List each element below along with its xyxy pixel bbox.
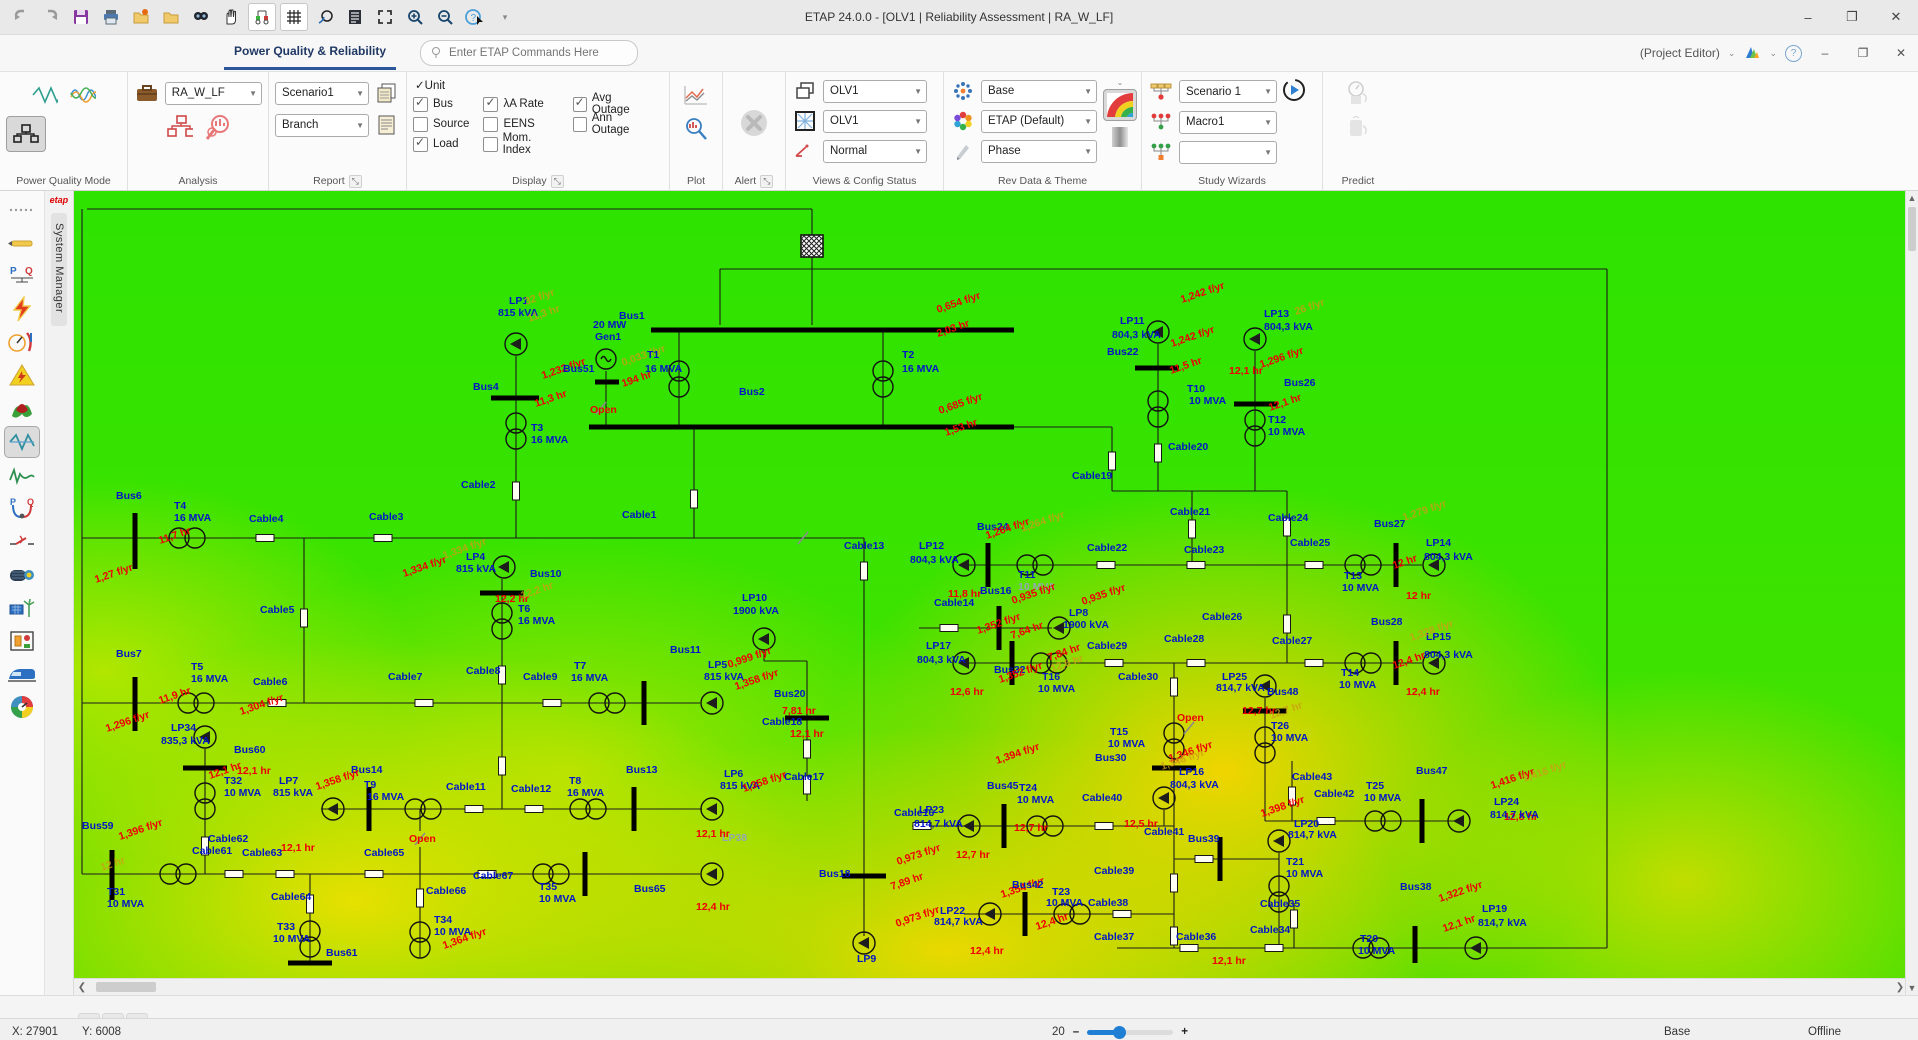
diagram-label: 814,7 kVA [1288, 829, 1337, 841]
group-label-plot: Plot [676, 172, 716, 190]
diagram-label: 10 MVA [1271, 732, 1309, 744]
cable-symbol[interactable] [1108, 452, 1115, 470]
diagram-label: Bus16 [980, 585, 1012, 597]
report-scenario-combo[interactable]: Scenario1▼ [275, 82, 369, 105]
scenario-wizard-icon[interactable] [1148, 79, 1174, 105]
diagram-label: Cable39 [1094, 865, 1134, 877]
diagram-label: Cable22 [1087, 542, 1127, 554]
ribbon-group-report: Scenario1▼ Branch▼ Report⤡ [269, 72, 407, 190]
scroll-down-icon[interactable]: ▼ [1908, 981, 1917, 995]
diagram-label: T13 [1344, 570, 1362, 582]
load-triangle-icon [1453, 815, 1464, 827]
display-launcher-icon[interactable]: ⤡ [551, 175, 564, 188]
presentation-views-icon[interactable] [792, 78, 818, 104]
diagram-label: 11,5 hr [1168, 355, 1203, 377]
diagram-label: Cable66 [426, 885, 466, 897]
color-mode-combo[interactable]: Phase▼ [981, 140, 1097, 163]
diagram-label: 10 MVA [1342, 582, 1380, 594]
diagram-label: 814,7 kVA [1216, 682, 1265, 694]
diagram-label: LP6 [724, 768, 743, 780]
open-project-icon[interactable] [158, 4, 184, 30]
cable-symbol[interactable] [1188, 520, 1195, 538]
diagram-label: Cable4 [249, 513, 284, 525]
diagram-label: Bus48 [1267, 686, 1299, 698]
doc-minimize-button[interactable]: – [1810, 38, 1840, 68]
diagram-label: LP10 [742, 592, 767, 604]
find-icon[interactable] [188, 4, 214, 30]
cable-symbol[interactable] [1154, 444, 1161, 462]
cable-symbol[interactable] [225, 871, 243, 878]
diagram-label: 12,1 hr [696, 828, 730, 840]
diagram-label: T33 [277, 921, 295, 933]
power-quality-wave-icon[interactable] [4, 426, 40, 458]
diagram-label: T24 [1019, 782, 1037, 794]
diagram-label: Bus6 [116, 490, 142, 502]
cable-symbol[interactable] [860, 562, 867, 580]
group-label-views: Views & Config Status [792, 172, 937, 190]
scroll-left-icon[interactable]: ❮ [74, 982, 90, 993]
diagram-label: Cable35 [1260, 898, 1300, 910]
cable-symbol[interactable] [465, 806, 483, 813]
scroll-up-icon[interactable]: ▲ [1908, 191, 1917, 205]
cable-symbol[interactable] [365, 871, 383, 878]
diagram-label: Cable25 [1290, 537, 1330, 549]
toolbar-overflow-icon[interactable]: ▾ [492, 4, 518, 30]
rev-data-combo[interactable]: Base▼ [981, 80, 1097, 103]
diagram-label: 1,358 f/yr [314, 767, 361, 793]
diagram-label: Cable28 [1164, 633, 1204, 645]
doc-close-button[interactable]: ✕ [1886, 38, 1916, 68]
doc-restore-button[interactable]: ❐ [1848, 38, 1878, 68]
diagram-label: Bus59 [82, 820, 114, 832]
checkbox-icon[interactable] [483, 137, 497, 152]
load-triangle-icon [510, 338, 521, 350]
plot-zoom-icon[interactable] [683, 116, 709, 142]
diagram-label: 804,3 kVA [1170, 779, 1219, 791]
macro-wizard-icon[interactable] [1148, 109, 1174, 135]
display-unit-toggle[interactable]: ✓Unit [415, 78, 663, 92]
diagram-label: Cable19 [1072, 470, 1112, 482]
diagram-label: 1,358 f/yr [741, 769, 788, 795]
diagram-label: LP7 [279, 775, 298, 787]
svg-text:Q: Q [25, 266, 33, 277]
diagram-label: Cable14 [934, 597, 974, 609]
group-label-pqmode: Power Quality Mode [6, 172, 121, 190]
new-project-icon[interactable] [128, 4, 154, 30]
diagram-label: Bus4 [473, 381, 499, 393]
diagram-label: 12,6 hr [950, 686, 984, 698]
diagram-label: 10 MVA [273, 933, 311, 945]
text-report-icon[interactable] [342, 4, 368, 30]
diagram-label: Bus13 [626, 764, 658, 776]
diagram-label: 0,685 f/yr [937, 391, 984, 417]
checkbox-icon[interactable] [573, 97, 587, 112]
minimize-button[interactable]: – [1786, 0, 1830, 34]
checkbox-icon[interactable] [483, 97, 498, 112]
diagram-label: Cable65 [364, 847, 404, 859]
report-launcher-icon[interactable]: ⤡ [349, 175, 362, 188]
cable-symbol[interactable] [498, 757, 505, 775]
report-type-combo[interactable]: Branch▼ [275, 114, 369, 137]
cable-symbol[interactable] [1170, 678, 1177, 696]
cable-symbol[interactable] [415, 700, 433, 707]
diagram-label: 12 hr [1406, 590, 1431, 602]
diagram-label: LP8 [1069, 607, 1088, 619]
alert-launcher-icon[interactable]: ⤡ [760, 175, 773, 188]
arc-flash-warning-icon[interactable] [5, 360, 39, 390]
diagram-label: 814,7 kVA [914, 818, 963, 830]
ribbon: Power Quality Mode RA_W_LF▼ Analysis Sce… [0, 72, 1918, 191]
display-checkbox[interactable]: Source [413, 114, 469, 134]
cable-symbol[interactable] [1305, 562, 1323, 569]
save-icon[interactable] [68, 4, 94, 30]
zoom-in-icon[interactable] [402, 4, 428, 30]
help-icon[interactable]: ? [1785, 45, 1802, 62]
edit-mode-pencil-icon[interactable] [5, 228, 39, 258]
cable-symbol[interactable] [1187, 562, 1205, 569]
vertical-scrollbar[interactable]: ▲ ▼ [1905, 191, 1918, 995]
diagram-label: 12,4 hr [970, 945, 1004, 957]
cable-symbol[interactable] [543, 700, 561, 707]
config-combo[interactable]: OLV1▼ [823, 110, 927, 133]
renewable-energy-icon[interactable] [5, 593, 39, 623]
cable-symbol[interactable] [374, 535, 392, 542]
cable-symbol[interactable] [525, 806, 543, 813]
zoom-slider[interactable] [1087, 1030, 1173, 1035]
diagram-label: Cable23 [1184, 544, 1224, 556]
diagram-label: LP17 [926, 640, 951, 652]
print-icon[interactable] [98, 4, 124, 30]
diagram-label: LP34 [171, 722, 196, 734]
diagram-label: LP5 [708, 659, 727, 671]
one-line-diagram-icon[interactable] [248, 3, 276, 31]
diagram-label: 0,973 f/yr [895, 842, 942, 868]
cable-symbol[interactable] [803, 740, 810, 758]
sequence-combo[interactable]: ▼ [1179, 141, 1277, 164]
redo-button[interactable] [38, 4, 64, 30]
diagram-label: 16 MVA [191, 673, 229, 685]
display-checkbox[interactable]: Mom. Index [483, 134, 558, 154]
diagram-label: Cable40 [1082, 792, 1122, 804]
config-view-icon[interactable] [792, 108, 818, 134]
diagram-label: T32 [224, 775, 242, 787]
waveform-multi-icon[interactable] [70, 82, 96, 108]
diagram-label: 12,7 hr [1268, 699, 1304, 721]
motor-starting-gauge-icon[interactable] [5, 327, 39, 357]
diagram-label: Bus22 [1107, 346, 1139, 358]
dashboard-gauge-icon[interactable] [5, 692, 39, 722]
theme-wheel-icon[interactable] [950, 108, 976, 134]
diagram-label: T21 [1286, 856, 1304, 868]
cable-symbol[interactable] [1097, 562, 1115, 569]
reliability-heatmap-diagram[interactable]: LP1815 kVA32 f/yr11,3 hrBus41,232 f/yr11… [74, 191, 1905, 979]
diagram-label: 10 MVA [1046, 897, 1084, 909]
diagram-label: Cable36 [1176, 931, 1216, 943]
diagram-label: 16 MVA [531, 434, 569, 446]
cable-symbol[interactable] [1170, 874, 1177, 892]
zoom-out-icon[interactable] [432, 4, 458, 30]
diagram-label: Cable21 [1170, 506, 1210, 518]
diagram-label: Bus20 [774, 688, 806, 700]
theme-chevron-icon[interactable]: ⌄ [1769, 48, 1777, 59]
gradient-bar-icon[interactable] [1107, 124, 1133, 150]
display-checkbox[interactable]: EENS [483, 114, 558, 134]
diagram-label: 1900 kVA [1063, 619, 1109, 631]
checkbox-icon[interactable] [483, 117, 498, 132]
command-input[interactable] [447, 46, 601, 60]
horizontal-scroll-thumb[interactable] [96, 982, 156, 992]
diagram-label: T5 [191, 661, 203, 673]
grid-icon[interactable] [280, 3, 308, 31]
run-scenario-button[interactable] [1282, 78, 1306, 105]
display-checkbox[interactable]: Avg Outage [573, 94, 649, 114]
checkbox-icon[interactable] [413, 117, 428, 132]
diagram-label: 10 MVA [1364, 792, 1402, 804]
report-doc-icon[interactable] [374, 112, 400, 138]
diagram-label: T15 [1110, 726, 1128, 738]
diagram-label: Cable43 [1292, 771, 1332, 783]
diagram-label: LP24 [1494, 796, 1519, 808]
quick-access-toolbar: ? ▾ [0, 3, 518, 31]
zoom-in-button[interactable]: + [1181, 1026, 1188, 1038]
diagram-label: Bus28 [1371, 616, 1403, 628]
diagram-label: 12,7 hr [956, 849, 990, 861]
scroll-right-icon[interactable]: ❯ [1892, 982, 1905, 993]
rev-data-dots-icon[interactable] [950, 78, 976, 104]
diagram-label: 804,3 kVA [1424, 551, 1473, 563]
short-circuit-bolt-icon[interactable] [5, 294, 39, 324]
diagram-label: 814,7 kVA [934, 916, 983, 928]
tab-power-quality-reliability[interactable]: Power Quality & Reliability [224, 36, 396, 70]
diagram-label: 1,334 f/yr [401, 554, 448, 580]
diagram-label: Cable2 [461, 479, 496, 491]
ribbon-group-display: ✓Unit BusSourceLoad λA RateEENSMom. Inde… [407, 72, 670, 190]
fit-to-page-icon[interactable] [372, 4, 398, 30]
tab-system-manager[interactable]: System Manager [51, 213, 67, 326]
connection-status: Offline [1808, 1026, 1841, 1038]
cable-symbol[interactable] [416, 889, 423, 907]
left-toolbar: PQ PQ [0, 191, 45, 995]
protection-coordination-icon[interactable] [5, 393, 39, 423]
diagram-label: 12,1 hr [1267, 391, 1303, 413]
zoom-level-value: 20 [1052, 1026, 1065, 1038]
diagram-label: 7,89 hr [889, 870, 925, 892]
cable-symbol[interactable] [276, 871, 294, 878]
horizontal-scrollbar[interactable]: ❮ ❯ [74, 978, 1905, 995]
display-checkbox[interactable]: λA Rate [483, 94, 558, 114]
diagram-label: 10 MVA [1268, 426, 1306, 438]
display-checkbox[interactable]: Bus [413, 94, 469, 114]
cable-symbol[interactable] [1113, 911, 1131, 918]
diagram-label: LP11 [1120, 315, 1145, 327]
brush-icon[interactable] [950, 138, 976, 164]
cable-symbol[interactable] [1187, 660, 1205, 667]
cable-symbol[interactable] [1283, 615, 1290, 633]
diagram-label: T6 [518, 603, 530, 615]
diagram-label: Cable30 [1118, 671, 1158, 683]
rev-data-mini-chevron-icon[interactable]: ⌄ [1117, 78, 1124, 87]
utility-hatch-icon [801, 235, 823, 257]
zoom-slider-thumb[interactable] [1113, 1026, 1126, 1039]
diagram-label: 1,296 f/yr [1258, 345, 1305, 371]
project-editor-chevron-icon[interactable]: ⌄ [1728, 48, 1736, 59]
run-reliability-icon[interactable] [167, 114, 193, 140]
diagram-label: 10 MVA [107, 898, 145, 910]
heatmap-theme-icon[interactable] [1103, 89, 1137, 121]
cursor-y-coordinate: Y: 6008 [70, 1026, 133, 1038]
checkbox-icon[interactable] [413, 97, 428, 112]
diagram-label: Bus39 [1188, 833, 1220, 845]
transient-stability-icon[interactable] [5, 461, 39, 491]
plot-chart-icon[interactable] [683, 82, 709, 108]
cable-symbol[interactable] [1095, 823, 1113, 830]
view-combo[interactable]: OLV1▼ [823, 80, 927, 103]
checkbox-icon[interactable] [413, 137, 428, 152]
status-combo[interactable]: Normal▼ [823, 140, 927, 163]
diagram-label: Cable38 [1088, 897, 1128, 909]
diagram-label: 12,1 hr [1212, 955, 1246, 967]
display-checkbox[interactable]: Load [413, 134, 469, 154]
diagram-label: 804,3 kVA [917, 654, 966, 666]
diagram-label: 10 MVA [539, 893, 577, 905]
motor-icon[interactable] [5, 560, 39, 590]
one-line-diagram-canvas[interactable]: LP1815 kVA32 f/yr11,3 hrBus41,232 f/yr11… [74, 191, 1905, 995]
diagram-label: Bus60 [234, 744, 266, 756]
cable-symbol[interactable] [690, 490, 697, 508]
theme-swatch-icon[interactable] [1743, 45, 1761, 61]
zoom-control: 20 – + [1052, 1026, 1188, 1038]
macro-combo[interactable]: Macro1▼ [1179, 111, 1277, 134]
load-triangle-icon [706, 803, 717, 815]
switching-device-icon[interactable] [5, 527, 39, 557]
diagram-label: 1,396 f/yr [117, 817, 164, 843]
diagram-label: Cable13 [844, 540, 884, 552]
load-triangle-icon [1470, 942, 1481, 954]
svg-text:?: ? [471, 13, 477, 24]
cable-symbol[interactable] [256, 535, 274, 542]
bottom-dock-tabs [0, 995, 1918, 1018]
pq-curve-icon[interactable]: PQ [5, 494, 39, 524]
cable-symbol[interactable] [512, 482, 519, 500]
control-system-icon[interactable] [5, 626, 39, 656]
load-triangle-icon [1249, 333, 1260, 345]
cable-symbol[interactable] [1180, 945, 1198, 952]
cable-symbol[interactable] [1195, 856, 1213, 863]
diagram-label: 12,1 hr [790, 728, 824, 740]
close-button[interactable]: ✕ [1874, 0, 1918, 34]
diagram-label: Cable17 [784, 771, 824, 783]
ribbon-group-rev-data-theme: Base▼ ETAP (Default)▼ Phase▼ ⌄ [944, 72, 1142, 190]
diagram-label: 11,3 hr [533, 388, 568, 410]
load-flow-pq-icon[interactable]: PQ [5, 261, 39, 291]
diagram-label: Cable61 [192, 845, 232, 857]
diagram-label: T1 [647, 349, 659, 361]
diagram-label: Bus47 [1416, 765, 1448, 777]
predict-gauge-icon [1345, 80, 1371, 106]
cable-symbol[interactable] [1317, 818, 1335, 825]
context-help-icon[interactable]: ? [462, 4, 488, 30]
diagram-label: Cable64 [271, 891, 311, 903]
cable-symbol[interactable] [1105, 660, 1123, 667]
restore-button[interactable]: ❐ [1830, 0, 1874, 34]
edit-toolbar-handle-icon[interactable] [5, 195, 39, 225]
display-check-col2: λA RateEENSMom. Index [483, 94, 558, 154]
cable-symbol[interactable] [940, 625, 958, 632]
diagram-label: 12,7 hr [1014, 822, 1048, 834]
cable-symbol[interactable] [1290, 910, 1297, 928]
study-case-combo[interactable]: RA_W_LF▼ [165, 82, 262, 105]
diagram-label: LP13 [1264, 308, 1289, 320]
load-triangle-icon [706, 868, 717, 880]
diagram-label: 1,242 f/yr [1179, 280, 1226, 306]
diagram-label: 16 MVA [567, 787, 605, 799]
diagram-label: T9 [364, 779, 376, 791]
status-line-icon[interactable] [792, 138, 818, 164]
pan-icon[interactable] [218, 4, 244, 30]
diagram-label: 12,4 hr [1406, 686, 1440, 698]
diagram-label: 12,1 hr [1441, 912, 1477, 934]
ribbon-group-study-wizards: Scenario 1▼ Macro1▼ ▼ Study Wizards [1142, 72, 1323, 190]
curve-tool-icon[interactable] [312, 4, 338, 30]
display-checkbox[interactable]: Ann Outage [573, 114, 649, 134]
diagram-label: 1900 kVA [733, 605, 779, 617]
waveform-basic-icon[interactable] [32, 82, 58, 108]
diagram-label: LP9 [857, 953, 876, 965]
diagram-label: Bus51 [563, 363, 595, 375]
diagram-label: Bus11 [670, 644, 701, 656]
sequence-wizard-icon[interactable] [1148, 139, 1174, 165]
main-area: PQ PQ etap System Manager [0, 191, 1918, 995]
diagram-label: 16 MVA [518, 615, 556, 627]
analyzer-icon[interactable] [203, 114, 229, 140]
diagram-label: Cable29 [1087, 640, 1127, 652]
diagram-label: LP12 [919, 540, 944, 552]
diagram-label: Bus38 [1400, 881, 1432, 893]
vertical-scroll-thumb[interactable] [1908, 207, 1916, 251]
diagram-label: Cable41 [1144, 826, 1184, 838]
diagram-label: 16 MVA [902, 363, 940, 375]
command-search-box[interactable] [420, 40, 638, 66]
diagram-label: 1,53 hr [943, 416, 979, 438]
cable-symbol[interactable] [1265, 945, 1283, 952]
diagram-label: Open [1177, 712, 1204, 724]
predict-battery-icon [1345, 114, 1371, 140]
ribbon-group-views-config: OLV1▼ OLV1▼ Normal▼ Views & Config Statu… [786, 72, 944, 190]
load-triangle-icon [1273, 835, 1284, 847]
diagram-label: 16 MVA [367, 791, 405, 803]
cable-symbol[interactable] [300, 609, 307, 627]
group-label-analysis: Analysis [134, 172, 262, 190]
theme-combo[interactable]: ETAP (Default)▼ [981, 110, 1097, 133]
scenario-combo[interactable]: Scenario 1▼ [1179, 80, 1277, 103]
diagram-label: 2,03 hr [935, 317, 971, 339]
diagram-label: Bus65 [634, 883, 666, 895]
undo-button[interactable] [8, 4, 34, 30]
diagram-label: Bus10 [530, 568, 562, 580]
etransit-train-icon[interactable] [5, 659, 39, 689]
diagram-label: 815 kVA [456, 563, 496, 575]
report-pages-icon[interactable] [374, 80, 400, 106]
zoom-out-button[interactable]: – [1073, 1026, 1079, 1038]
reliability-mode-button[interactable] [6, 116, 46, 152]
group-label-report: Report⤡ [275, 172, 400, 190]
diagram-label: Bus42 [1012, 879, 1044, 891]
command-bulb-icon [431, 46, 441, 60]
checkbox-icon[interactable] [573, 117, 587, 132]
display-check-col1: BusSourceLoad [413, 94, 469, 154]
cable-symbol[interactable] [1305, 660, 1323, 667]
project-editor-label[interactable]: (Project Editor) [1640, 46, 1720, 60]
